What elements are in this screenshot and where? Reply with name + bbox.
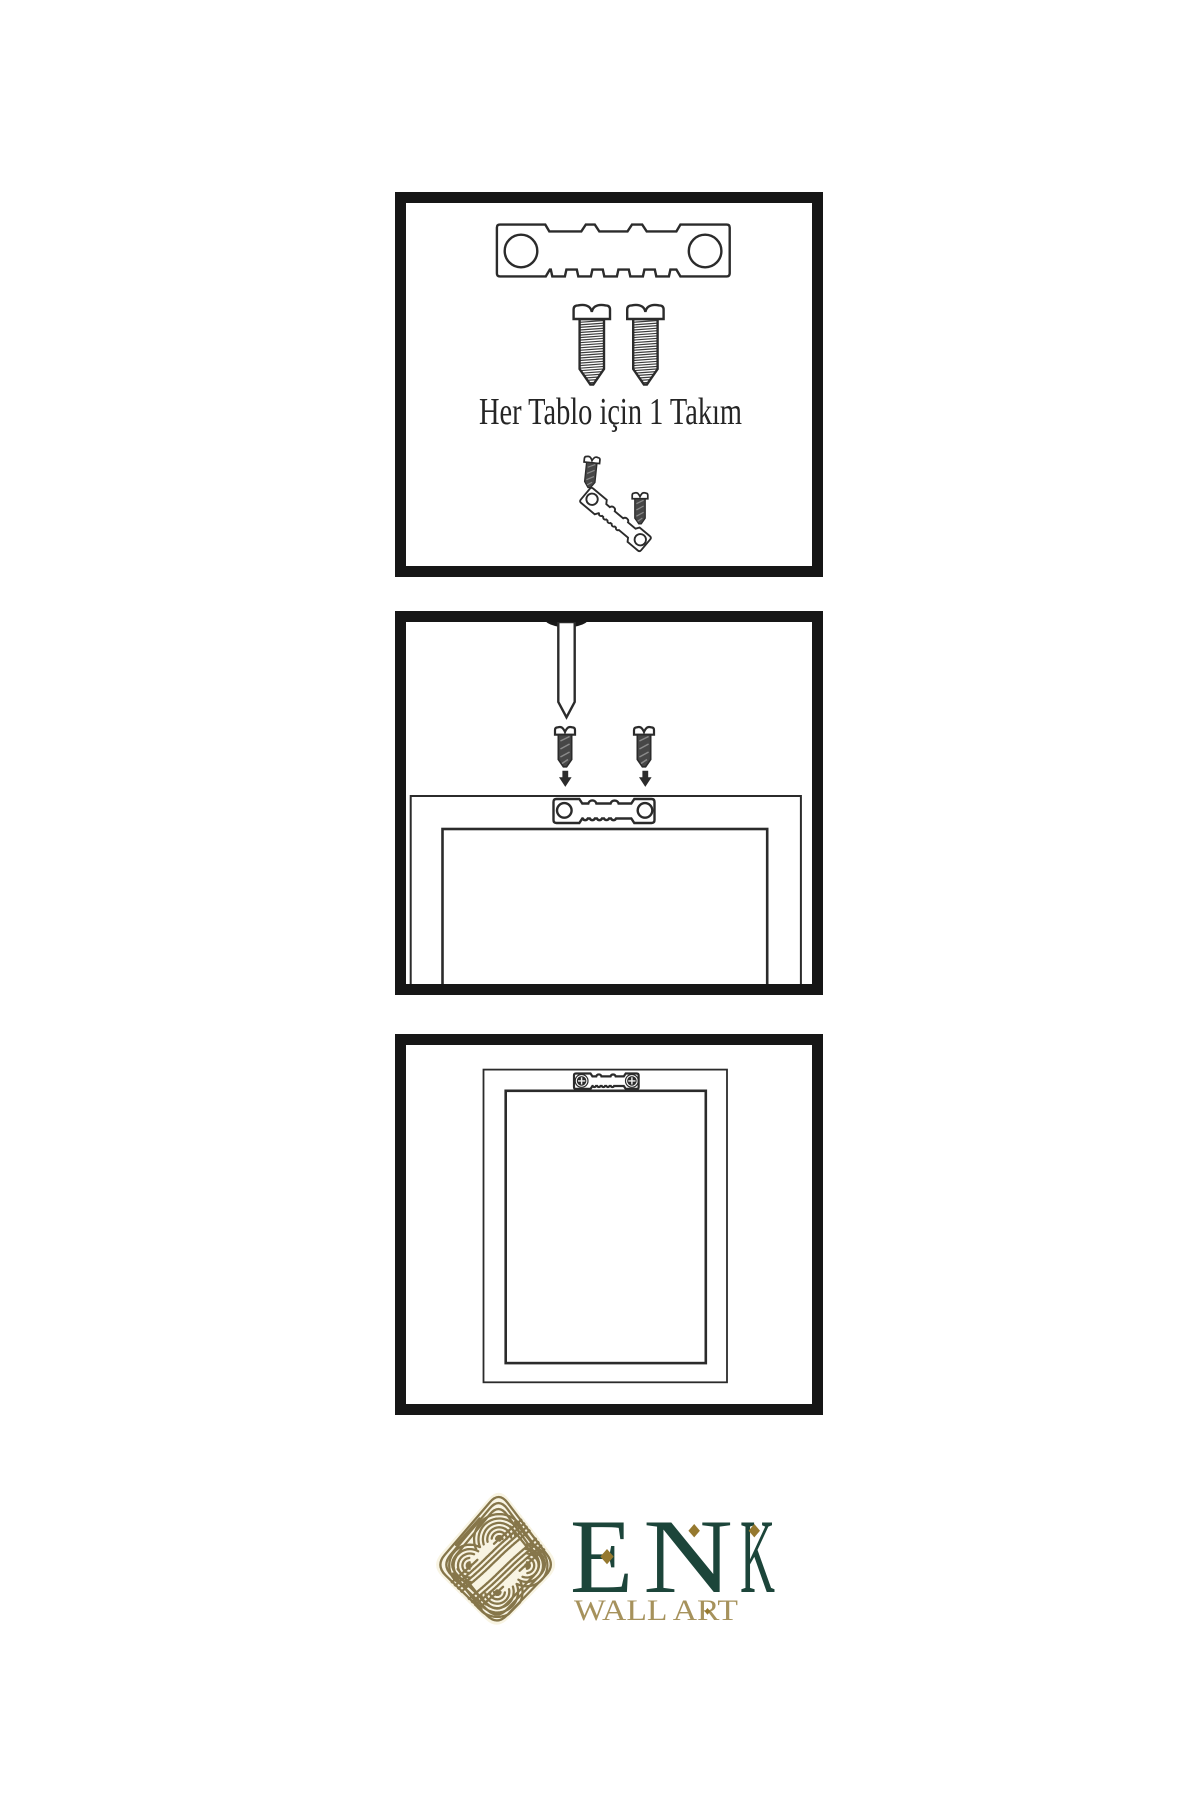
svg-text:WALL ART: WALL ART xyxy=(574,1594,738,1627)
svg-text:K: K xyxy=(740,1498,775,1615)
svg-text:Her Tablo için 1 Takım: Her Tablo için 1 Takım xyxy=(479,391,742,433)
